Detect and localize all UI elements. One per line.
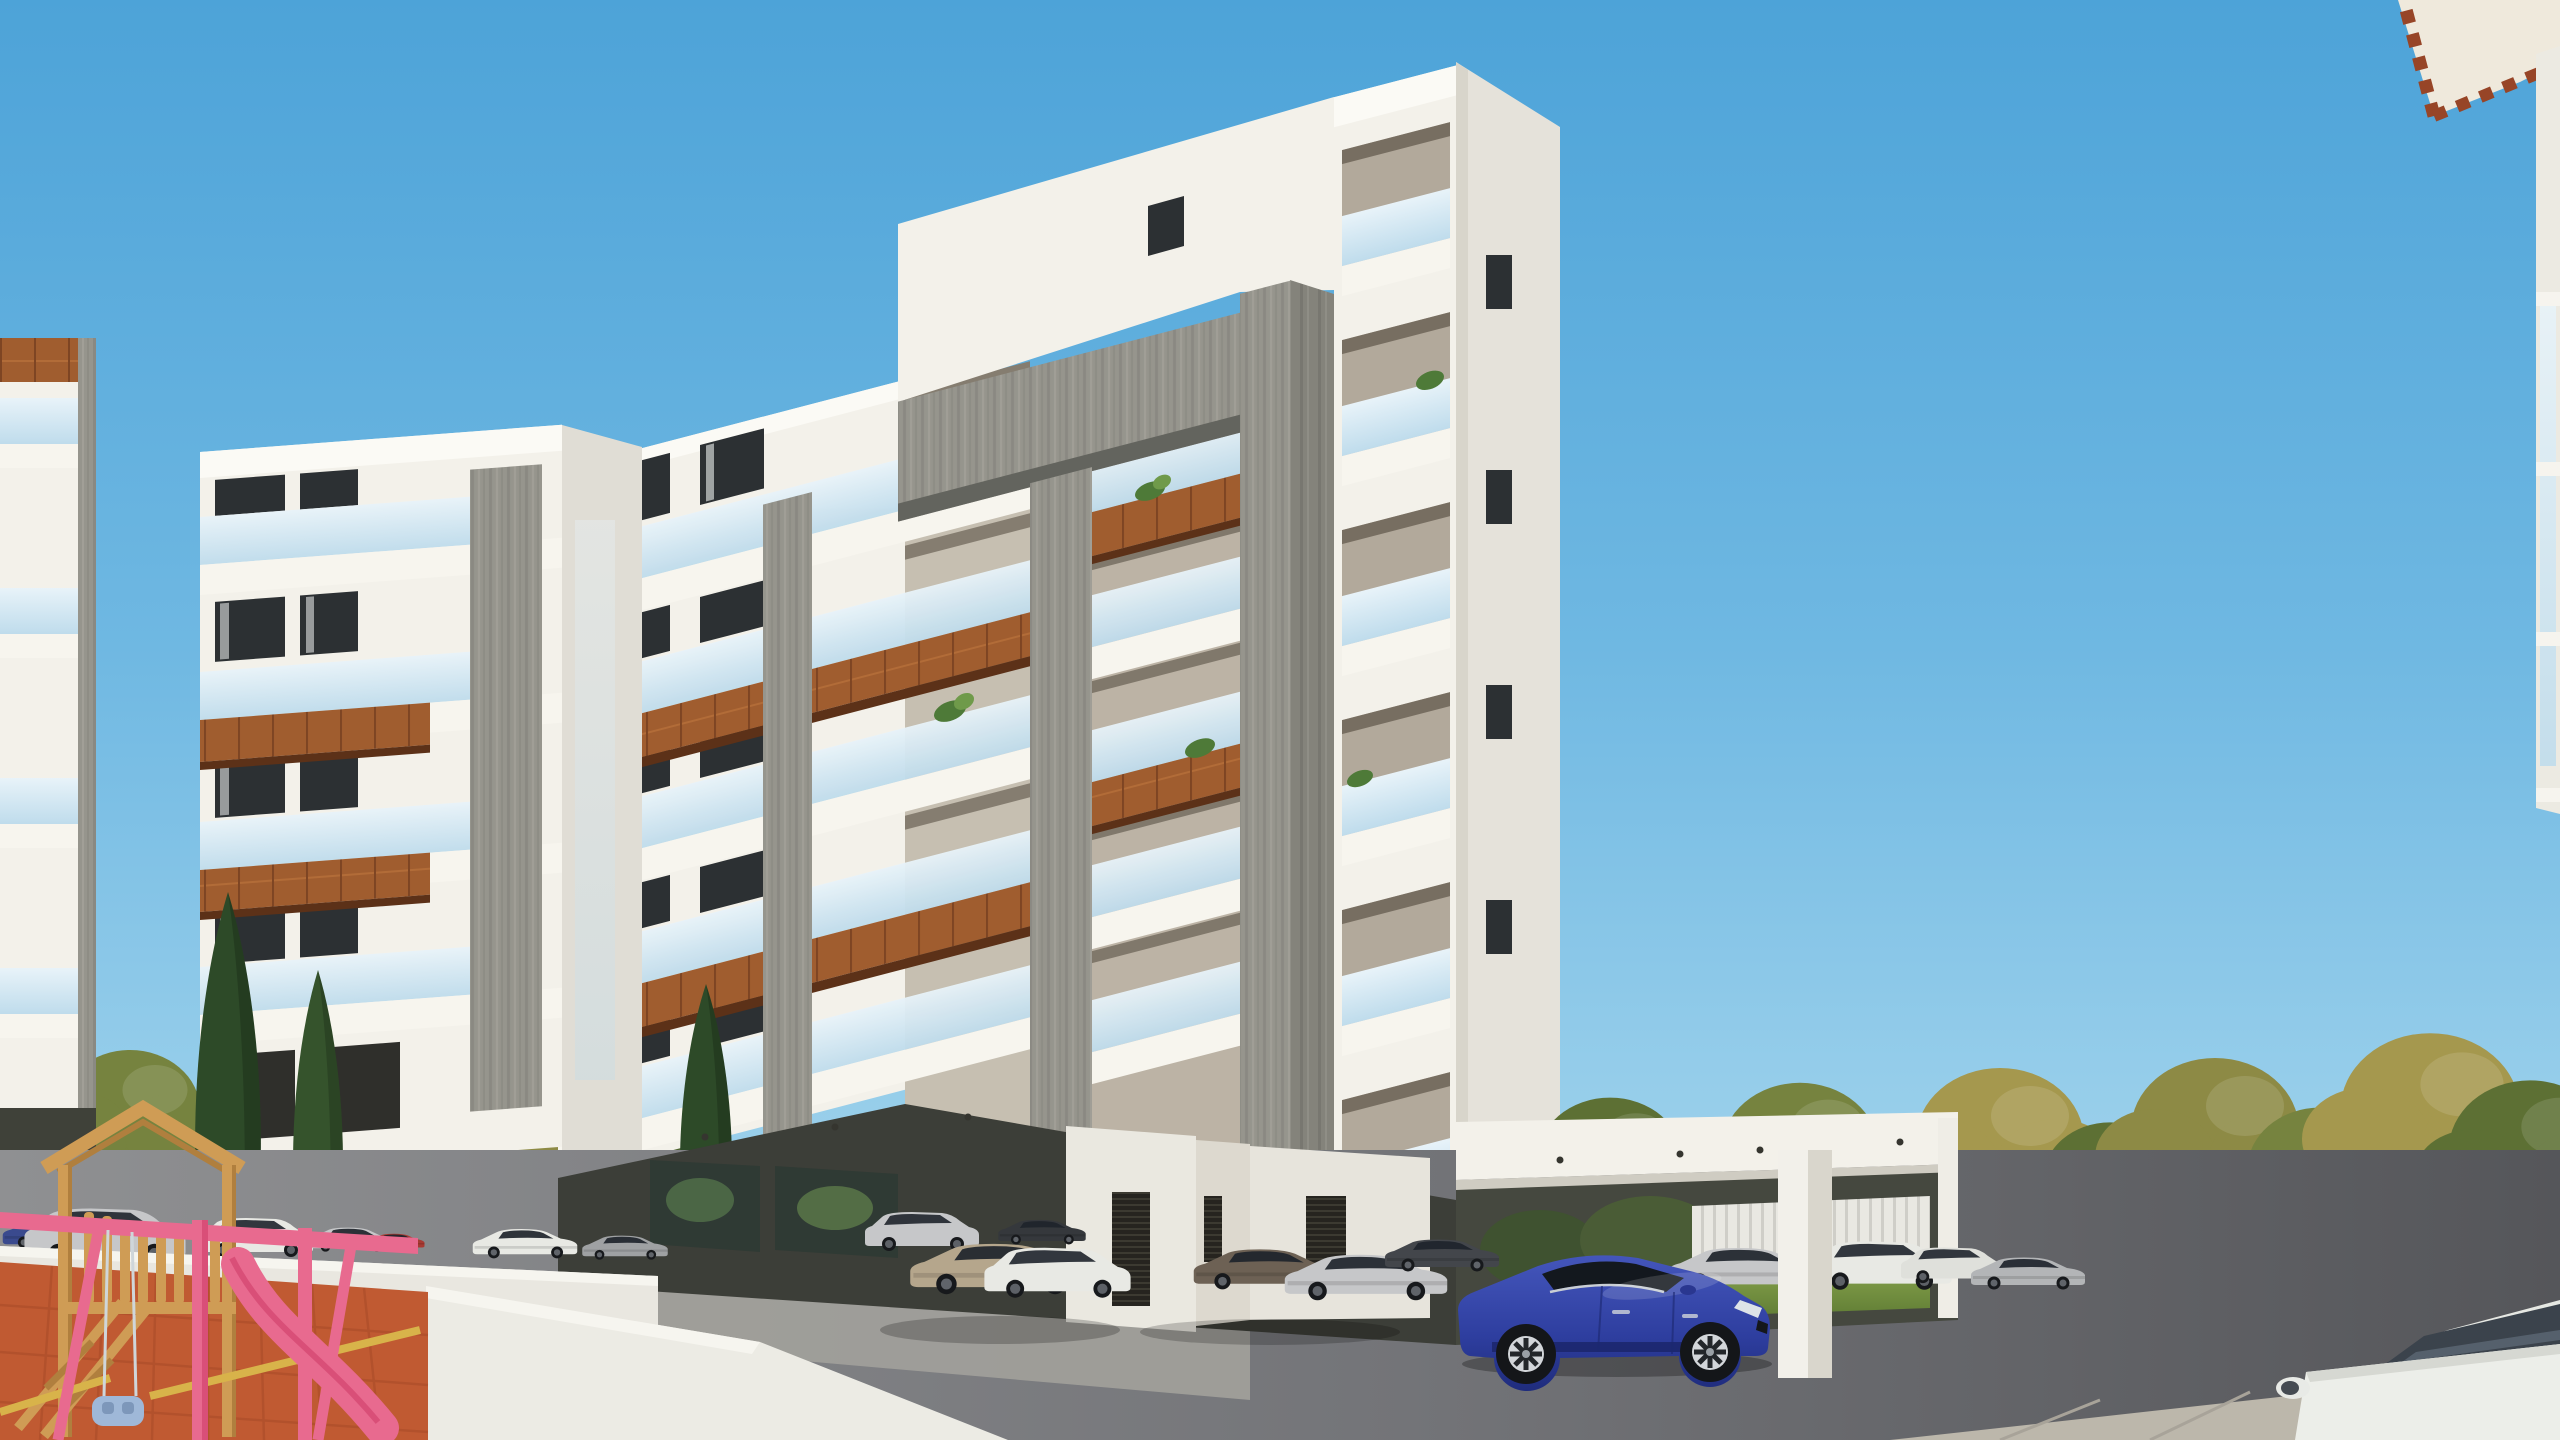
left-building	[200, 425, 642, 1192]
side-mirror	[2276, 1377, 2310, 1399]
pilotis-edge-pier	[1938, 1118, 1958, 1318]
neighbor-glass-balustrade	[2540, 296, 2556, 766]
louvered-door	[1204, 1196, 1222, 1262]
gray-stone-column	[470, 464, 542, 1111]
render-viewport	[0, 0, 2560, 1440]
scene-canvas	[0, 0, 2560, 1440]
wheel-rear	[1496, 1324, 1556, 1384]
gray-stone-column	[78, 338, 96, 1110]
wheel-front	[1680, 1322, 1740, 1382]
pilotis-column-foreground	[1778, 1150, 1832, 1378]
gray-concrete-pillar	[763, 492, 812, 1202]
portal-right-column	[1240, 281, 1290, 1284]
small-window	[1148, 196, 1184, 256]
baby-swing	[92, 1396, 144, 1426]
far-left-building	[0, 338, 96, 1228]
portal-column-side	[1290, 280, 1334, 1280]
